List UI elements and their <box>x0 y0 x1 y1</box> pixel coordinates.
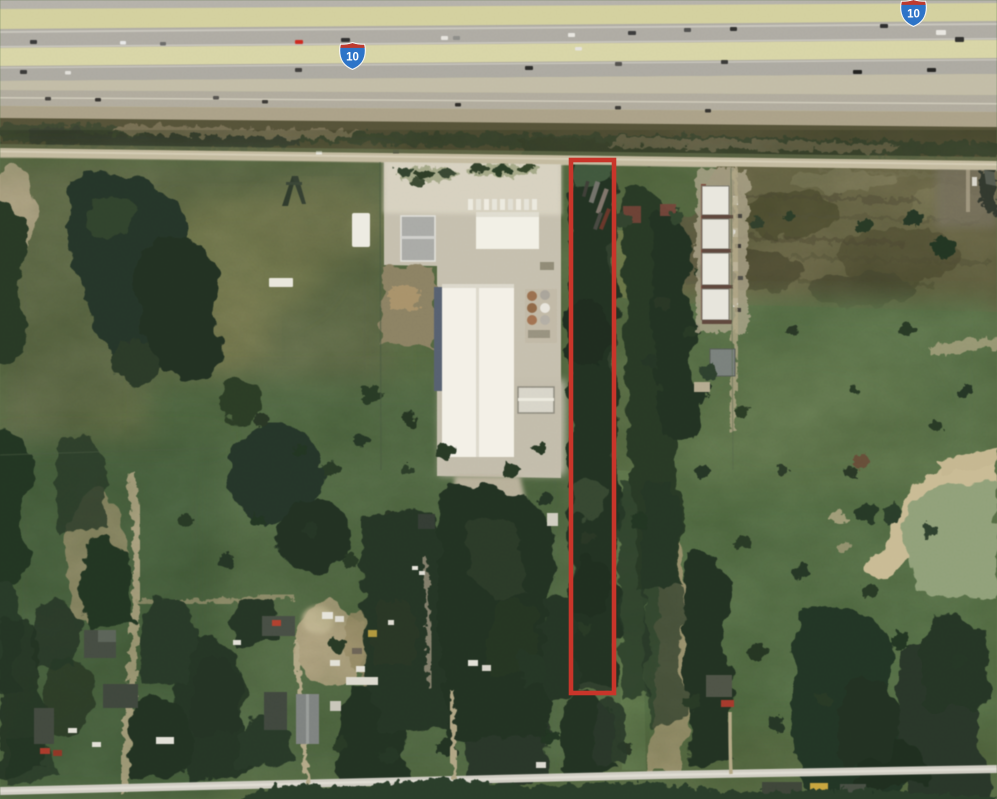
svg-text:10: 10 <box>907 9 920 21</box>
svg-text:10: 10 <box>346 52 359 64</box>
